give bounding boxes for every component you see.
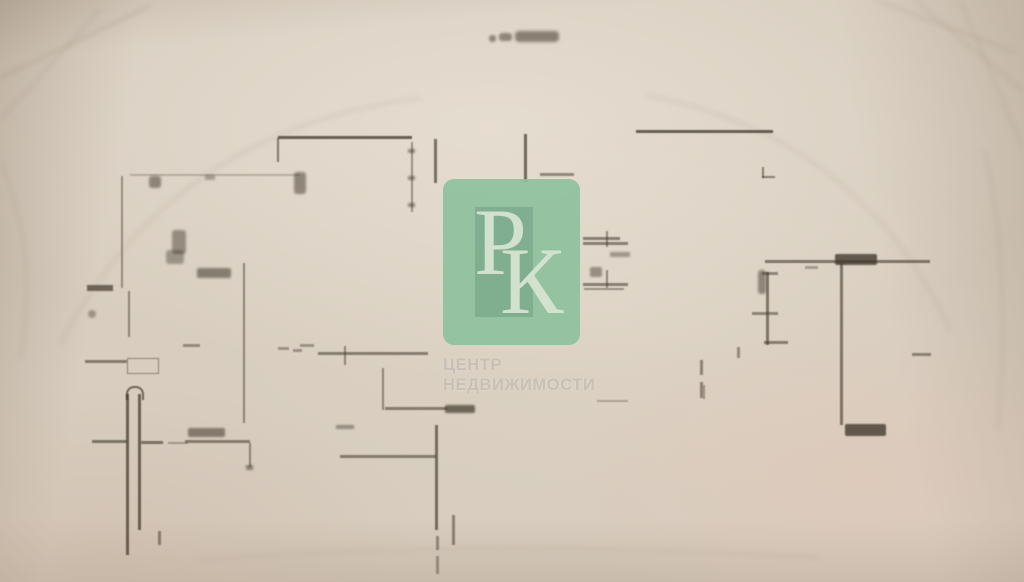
column-wall	[138, 394, 141, 530]
dimension-arrow	[408, 149, 415, 153]
wall	[597, 400, 628, 402]
fixture-rect	[127, 358, 159, 374]
wall	[141, 441, 163, 444]
label-smudge	[188, 428, 225, 437]
floorplan-photo: Р К ЦЕНТР НЕДВИЖИМОСТИ	[0, 0, 1024, 582]
wall-tick	[344, 346, 346, 365]
mark-smudge	[88, 310, 96, 318]
wall-corner	[762, 176, 775, 178]
label-smudge	[845, 424, 886, 436]
wall-tick	[249, 443, 251, 467]
wall	[278, 136, 412, 139]
wall-tick	[452, 515, 455, 545]
wall	[382, 368, 384, 410]
door-line	[584, 288, 624, 290]
door-line	[583, 237, 620, 240]
wall	[385, 407, 447, 410]
column-arc	[126, 386, 144, 400]
mark-smudge	[149, 176, 161, 188]
wall	[293, 349, 302, 352]
wall	[92, 440, 127, 443]
label-smudge	[197, 268, 231, 278]
title-smudge	[489, 35, 496, 42]
wall	[121, 176, 123, 288]
wall	[85, 360, 127, 363]
wall-thick	[87, 285, 113, 291]
wall	[436, 536, 439, 550]
mark-smudge	[336, 425, 354, 429]
wall	[912, 353, 931, 356]
watermark-monogram-letter-k: К	[500, 234, 563, 329]
wall-tick	[703, 385, 705, 399]
wall	[318, 352, 428, 355]
wall	[766, 272, 769, 345]
mark-smudge	[294, 172, 306, 194]
label-smudge	[445, 405, 475, 413]
wall	[636, 130, 773, 133]
wall-tick	[434, 139, 437, 183]
wall	[435, 425, 438, 530]
mark-smudge	[166, 250, 184, 264]
wall	[764, 341, 788, 344]
wall-tick	[277, 138, 279, 162]
watermark-badge: Р К	[443, 179, 580, 345]
wall	[805, 266, 818, 269]
dimension-arrow	[408, 203, 415, 207]
wall	[243, 263, 245, 423]
wall-tick	[606, 270, 608, 288]
wall	[436, 556, 439, 574]
wall	[185, 440, 250, 443]
wall	[183, 344, 200, 347]
mark-smudge	[610, 252, 630, 257]
watermark-caption-line1: ЦЕНТР	[443, 356, 643, 376]
wall	[300, 344, 314, 347]
watermark-caption-line2: НЕДВИЖИМОСТИ	[443, 376, 643, 396]
wall-dash	[700, 360, 703, 375]
title-smudge	[499, 33, 512, 41]
wall	[540, 173, 574, 176]
dimension-arrow	[246, 465, 253, 470]
wall-tick	[737, 347, 740, 358]
mark-smudge	[590, 267, 602, 277]
mark-smudge	[205, 175, 215, 180]
wall-tick	[158, 531, 161, 545]
wall	[762, 272, 778, 275]
wall	[340, 455, 436, 458]
wall	[840, 263, 843, 425]
column-wall	[126, 394, 129, 555]
dimension-arrow	[408, 176, 415, 180]
wall	[278, 347, 289, 350]
watermark-caption: ЦЕНТР НЕДВИЖИМОСТИ	[443, 356, 643, 395]
wall-tick	[524, 134, 527, 182]
title-smudge	[515, 31, 559, 42]
wall-tick	[606, 231, 608, 247]
wall	[128, 291, 130, 337]
wall	[752, 312, 778, 315]
